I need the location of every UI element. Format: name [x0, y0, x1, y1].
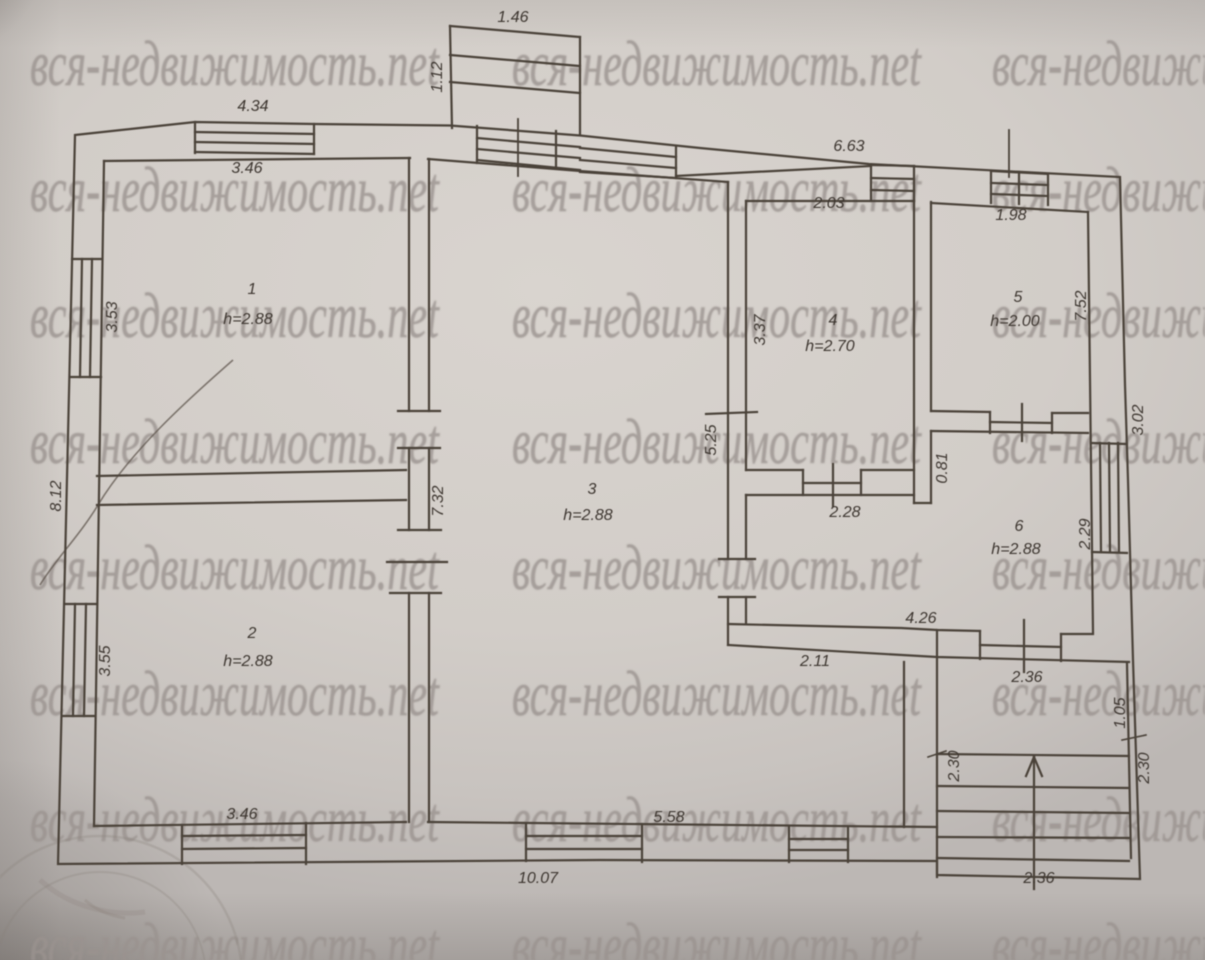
svg-text:1.98: 1.98 — [995, 207, 1026, 224]
svg-text:7.32: 7.32 — [430, 485, 447, 516]
svg-text:1.46: 1.46 — [497, 9, 528, 26]
svg-text:вся-недвижимость.net: вся-недвижимость.net — [992, 406, 1205, 477]
svg-text:2.36: 2.36 — [1010, 669, 1042, 686]
svg-text:вся-недвижимость.net: вся-недвижимость.net — [512, 280, 922, 351]
svg-text:вся-недвижимость.net: вся-недвижимость.net — [512, 784, 922, 855]
svg-text:вся-недвижимость.net: вся-недвижимость.net — [512, 154, 922, 225]
svg-text:2.29: 2.29 — [1077, 518, 1094, 550]
svg-text:6.63: 6.63 — [833, 138, 864, 155]
svg-text:3.53: 3.53 — [104, 301, 121, 332]
svg-text:2.36: 2.36 — [1022, 870, 1054, 887]
svg-text:5: 5 — [1014, 289, 1023, 306]
svg-text:вся-недвижимость.net: вся-недвижимость.net — [30, 406, 440, 477]
svg-text:5.25: 5.25 — [703, 424, 720, 455]
svg-text:вся-недвижимость.net: вся-недвижимость.net — [992, 784, 1205, 855]
svg-text:2.03: 2.03 — [812, 195, 844, 212]
svg-text:вся-недвижимость.net: вся-недвижимость.net — [992, 910, 1205, 960]
svg-text:4: 4 — [829, 312, 838, 329]
svg-text:2.11: 2.11 — [799, 653, 830, 670]
svg-text:2: 2 — [247, 625, 257, 642]
svg-text:h=2.88: h=2.88 — [991, 541, 1040, 558]
svg-text:h=2.88: h=2.88 — [223, 311, 272, 328]
svg-text:h=2.88: h=2.88 — [223, 653, 272, 670]
svg-text:4.26: 4.26 — [905, 610, 936, 627]
svg-text:вся-недвижимость.net: вся-недвижимость.net — [512, 658, 922, 729]
svg-text:4.34: 4.34 — [237, 98, 268, 115]
svg-text:2.28: 2.28 — [828, 504, 860, 521]
svg-text:6: 6 — [1015, 518, 1024, 535]
svg-text:1.05: 1.05 — [1112, 697, 1129, 728]
svg-text:7.52: 7.52 — [1073, 290, 1090, 321]
svg-text:h=2.88: h=2.88 — [563, 507, 612, 524]
svg-text:вся-недвижимость.net: вся-недвижимость.net — [512, 28, 922, 99]
svg-text:вся-недвижимость.net: вся-недвижимость.net — [30, 28, 440, 99]
svg-text:3.46: 3.46 — [231, 160, 262, 177]
svg-text:2.30: 2.30 — [946, 750, 963, 782]
svg-text:h=2.00: h=2.00 — [990, 313, 1039, 330]
svg-text:вся-недвижимость.net: вся-недвижимость.net — [30, 532, 440, 603]
svg-text:вся-недвижимость.net: вся-недвижимость.net — [512, 532, 922, 603]
svg-text:0.81: 0.81 — [934, 452, 951, 483]
svg-text:3: 3 — [588, 481, 597, 498]
svg-text:1.12: 1.12 — [429, 61, 446, 92]
svg-text:2.30: 2.30 — [1136, 752, 1153, 784]
svg-text:3.02: 3.02 — [1130, 404, 1147, 435]
svg-text:вся-недвижимость.net: вся-недвижимость.net — [512, 910, 922, 960]
svg-text:вся-недвижимость.net: вся-недвижимость.net — [992, 28, 1205, 99]
svg-text:10.07: 10.07 — [518, 870, 559, 887]
svg-text:1: 1 — [248, 281, 257, 298]
svg-text:h=2.70: h=2.70 — [805, 338, 854, 355]
svg-text:3.46: 3.46 — [226, 806, 257, 823]
svg-text:3.55: 3.55 — [97, 645, 114, 676]
svg-text:8.12: 8.12 — [48, 480, 65, 511]
svg-text:5.58: 5.58 — [653, 809, 684, 826]
svg-text:3.37: 3.37 — [752, 313, 769, 345]
